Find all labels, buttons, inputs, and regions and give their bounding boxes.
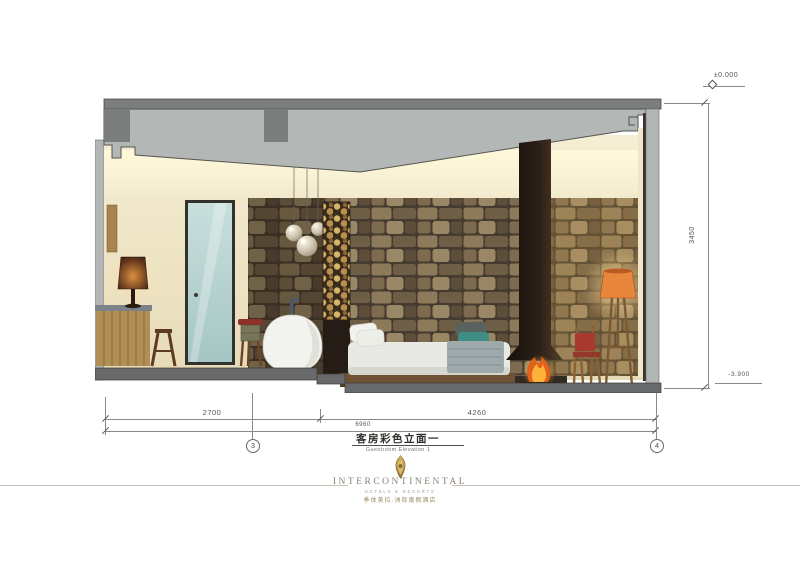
title-underline — [352, 445, 464, 446]
grid-bubble-3: 3 — [246, 439, 260, 453]
right-wall-section — [638, 109, 659, 385]
grid-bubble-4: 4 — [650, 439, 664, 453]
wood-panel — [107, 205, 117, 252]
elevation-drawing — [95, 95, 662, 393]
page: { "drawing": { "title_cn": "客房彩色立面一", "t… — [0, 0, 800, 566]
height-dim-line — [708, 103, 709, 389]
brand-name: INTERCONTINENTAL — [300, 477, 500, 487]
firewood-stack — [323, 202, 350, 376]
intercontinental-emblem-icon — [391, 455, 410, 479]
throw-blanket — [447, 341, 504, 373]
grid-line-3 — [252, 393, 253, 439]
sideboard — [95, 305, 152, 366]
dim-seg1-value: 2700 — [187, 408, 237, 417]
elevation-scene — [95, 95, 662, 393]
footer-rule-right — [452, 485, 800, 486]
grid-line-4 — [656, 393, 657, 439]
footer-rule-left — [0, 485, 348, 486]
level-symbol-icon — [708, 80, 718, 90]
door — [185, 200, 235, 365]
height-dim-value: 3450 — [689, 215, 699, 255]
brand-name-cn: 季体美拉·洲际度假酒店 — [330, 495, 470, 504]
level-top-value: ±0.000 — [703, 72, 749, 79]
drawing-title: 客房彩色立面一 — [337, 431, 459, 446]
dim-line-segments — [105, 419, 656, 420]
dim-seg2-value: 4260 — [452, 408, 502, 417]
level-bottom-underline — [715, 383, 762, 384]
level-bottom-value: -3.900 — [716, 371, 762, 378]
brand-tagline: HOTELS & RESORTS — [330, 489, 470, 494]
door-handle — [194, 293, 198, 297]
dim-total-value: 6960 — [347, 422, 379, 428]
drawing-subtitle: Guestroom Elevation 1 — [337, 447, 459, 453]
